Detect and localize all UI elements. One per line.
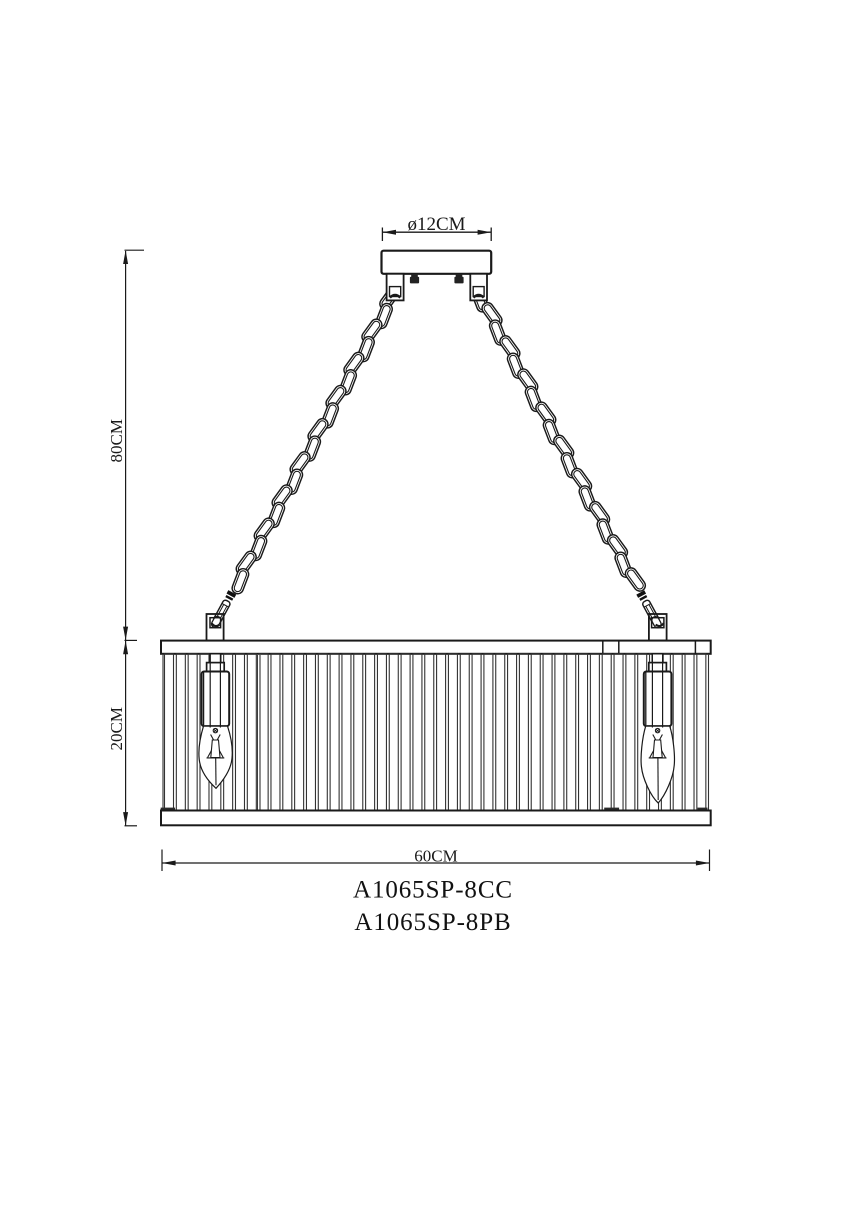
svg-text:ø12CM: ø12CM [407,214,465,235]
svg-text:20CM: 20CM [107,707,126,750]
svg-text:60CM: 60CM [414,847,457,866]
svg-text:A1065SP-8PB: A1065SP-8PB [354,909,511,936]
svg-text:80CM: 80CM [107,419,126,462]
svg-text:A1065SP-8CC: A1065SP-8CC [353,877,513,904]
